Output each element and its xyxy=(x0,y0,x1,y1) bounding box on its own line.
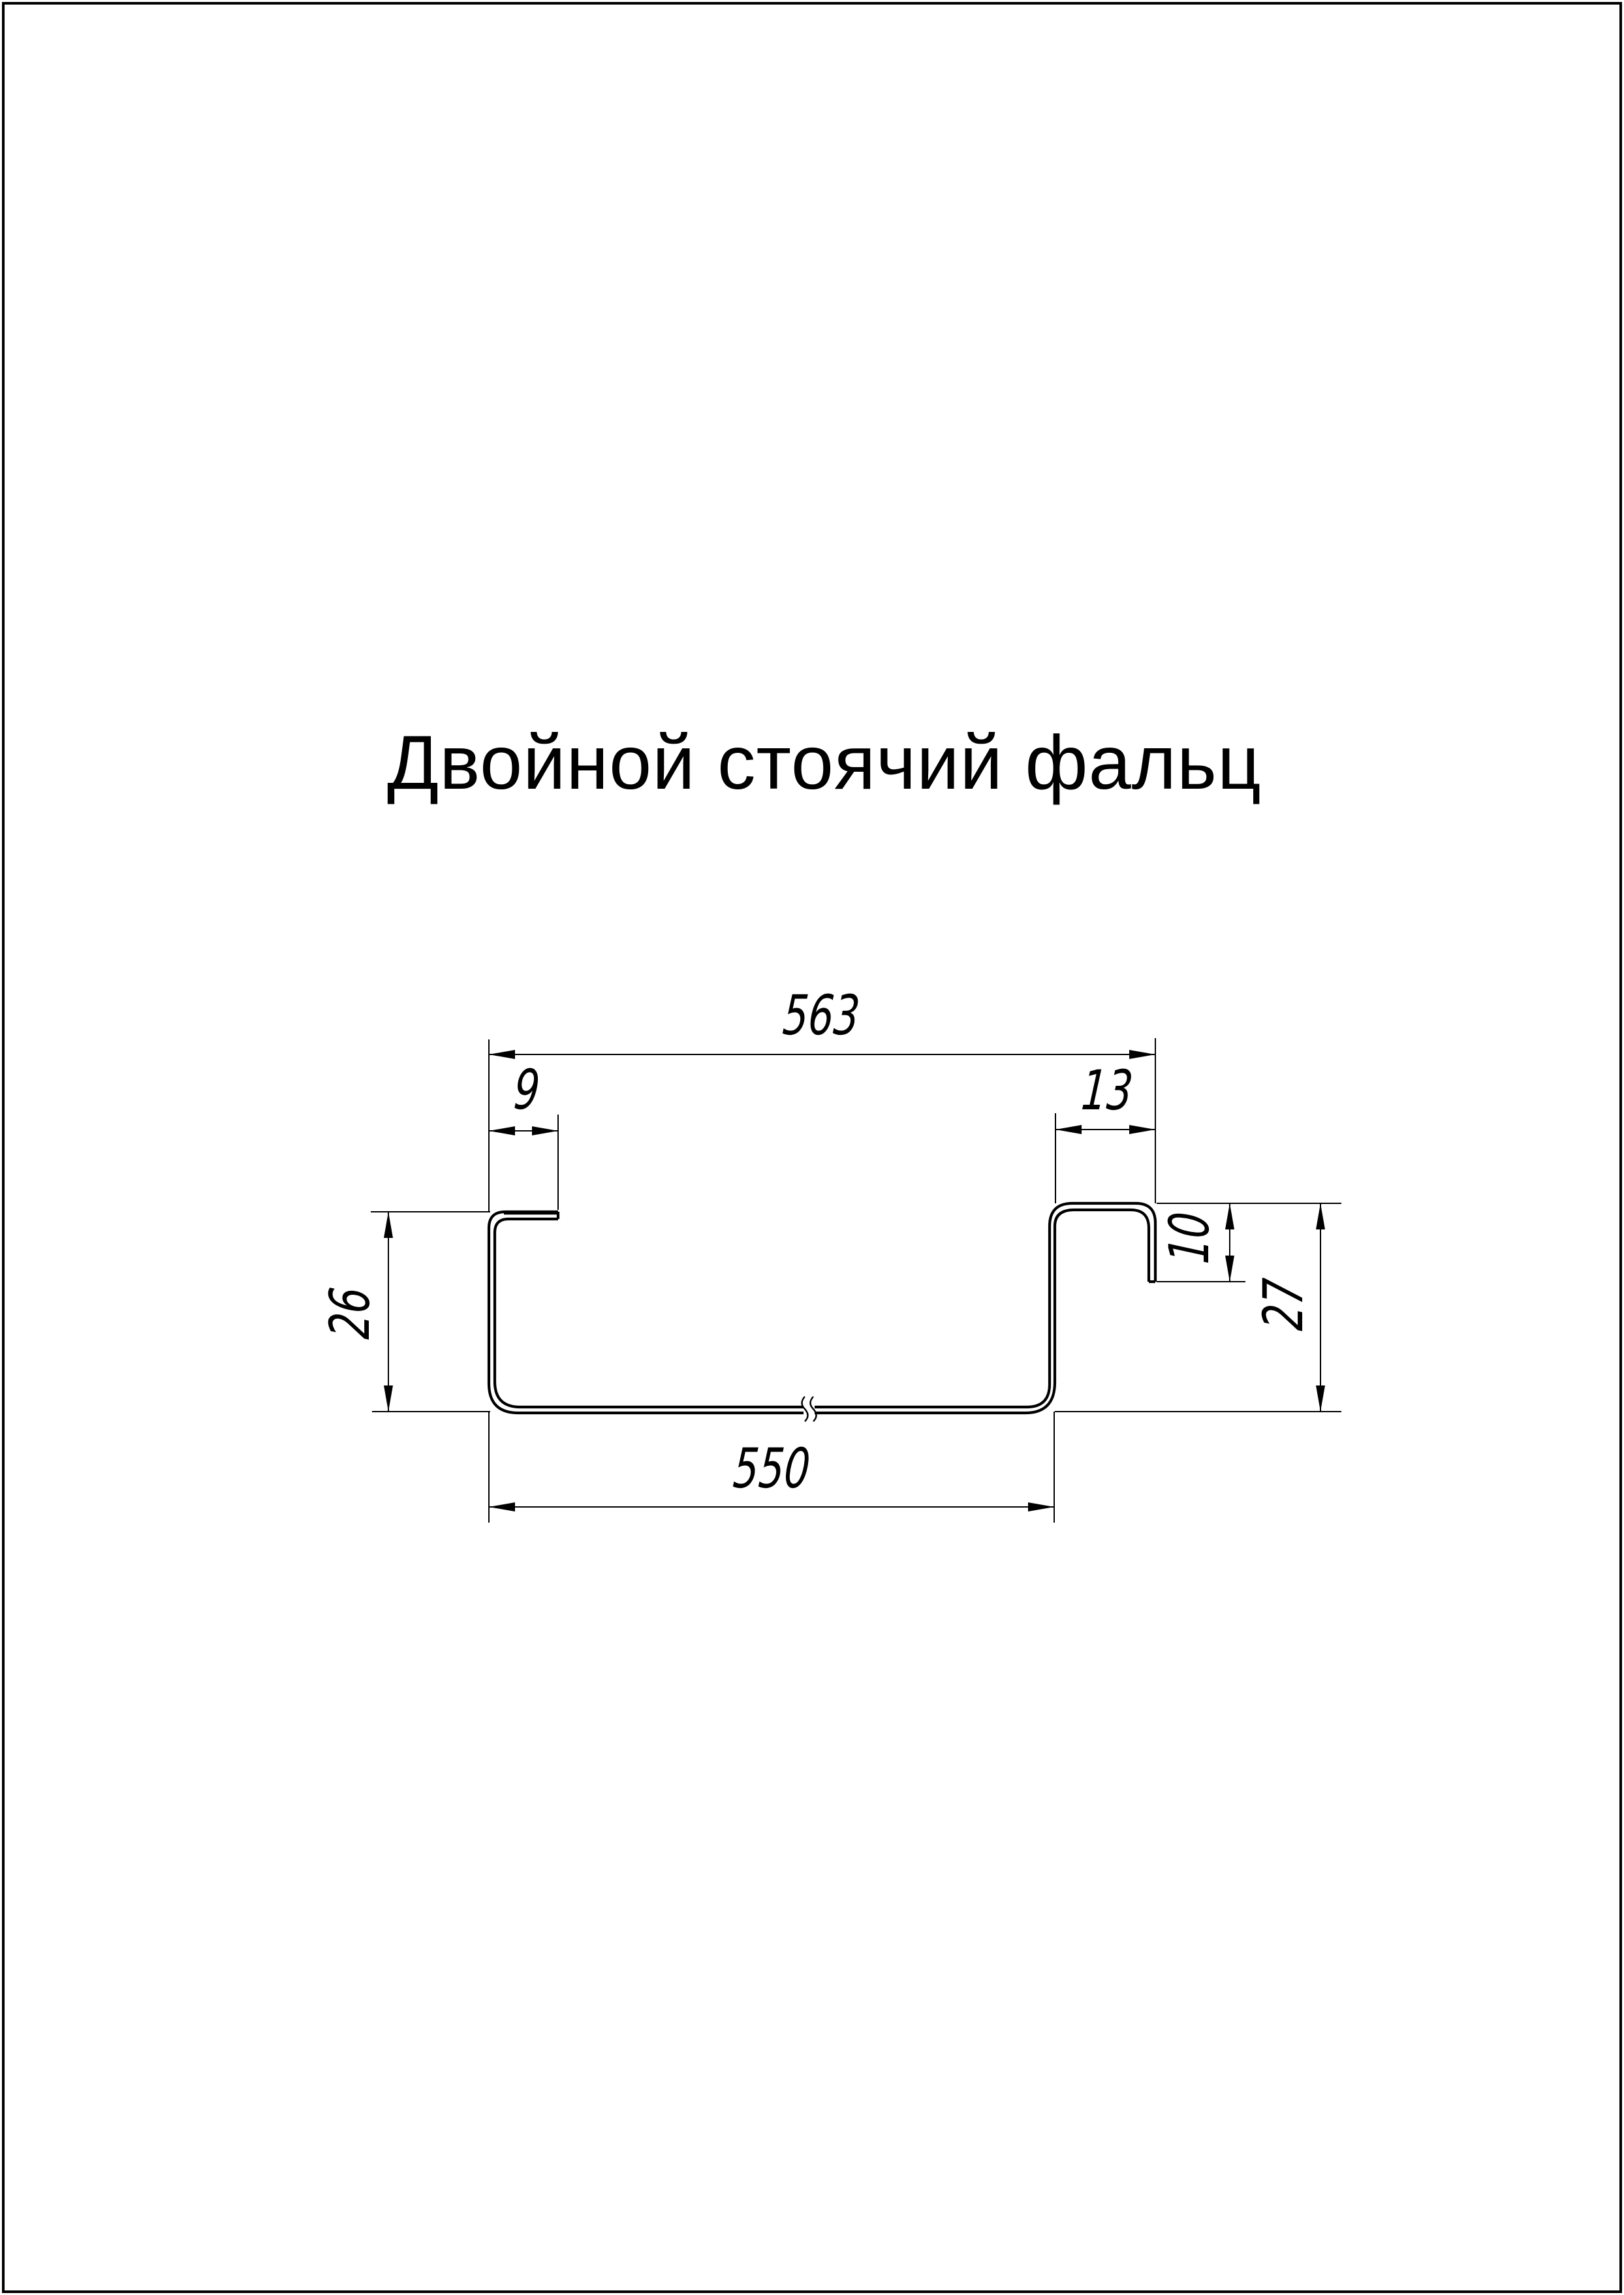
arrowhead-left xyxy=(1055,1125,1082,1134)
arrowhead-right xyxy=(532,1126,558,1135)
dim-right-height-label: 27 xyxy=(1253,1276,1316,1333)
arrowhead-right xyxy=(1129,1125,1155,1134)
arrowhead-left xyxy=(489,1502,515,1512)
arrowhead-bottom xyxy=(1316,1385,1325,1412)
arrowhead-left xyxy=(489,1050,515,1059)
arrowhead-top xyxy=(1316,1203,1325,1229)
arrowhead-left xyxy=(489,1126,515,1135)
page-border xyxy=(3,3,1621,2292)
profile-edge-caps xyxy=(558,1212,1155,1282)
drawing-sheet: Двойной стоячий фальц xyxy=(0,0,1624,2295)
dim-overall-width: 563 xyxy=(489,985,1155,1059)
dim-right-height: 27 xyxy=(1253,1203,1325,1412)
arrowhead-top xyxy=(1225,1203,1234,1229)
profile-outline-inner-surface xyxy=(495,1203,1155,1407)
dim-overall-width-label: 563 xyxy=(781,985,862,1048)
dim-bottom-width-label: 550 xyxy=(731,1438,812,1501)
profile-drawing-canvas: Двойной стоячий фальц xyxy=(0,0,1624,2295)
dim-right-hook-width-label: 13 xyxy=(1079,1060,1134,1123)
dim-left-height-label: 26 xyxy=(319,1285,383,1340)
arrowhead-right xyxy=(1028,1502,1054,1512)
dim-bottom-width: 550 xyxy=(489,1438,1054,1512)
arrowhead-bottom xyxy=(384,1385,393,1412)
break-mark xyxy=(802,1397,817,1421)
arrowhead-bottom xyxy=(1225,1256,1234,1282)
dim-hook-depth-label: 10 xyxy=(1159,1210,1222,1265)
arrowhead-top xyxy=(384,1212,393,1238)
dim-left-lip-label: 9 xyxy=(512,1059,542,1122)
dim-right-hook-width: 13 xyxy=(1055,1060,1155,1134)
drawing-title: Двойной стоячий фальц xyxy=(387,720,1262,805)
dim-left-lip: 9 xyxy=(489,1059,558,1135)
arrowhead-right xyxy=(1129,1050,1155,1059)
dim-left-height: 26 xyxy=(319,1212,393,1412)
dim-hook-depth: 10 xyxy=(1159,1203,1234,1282)
